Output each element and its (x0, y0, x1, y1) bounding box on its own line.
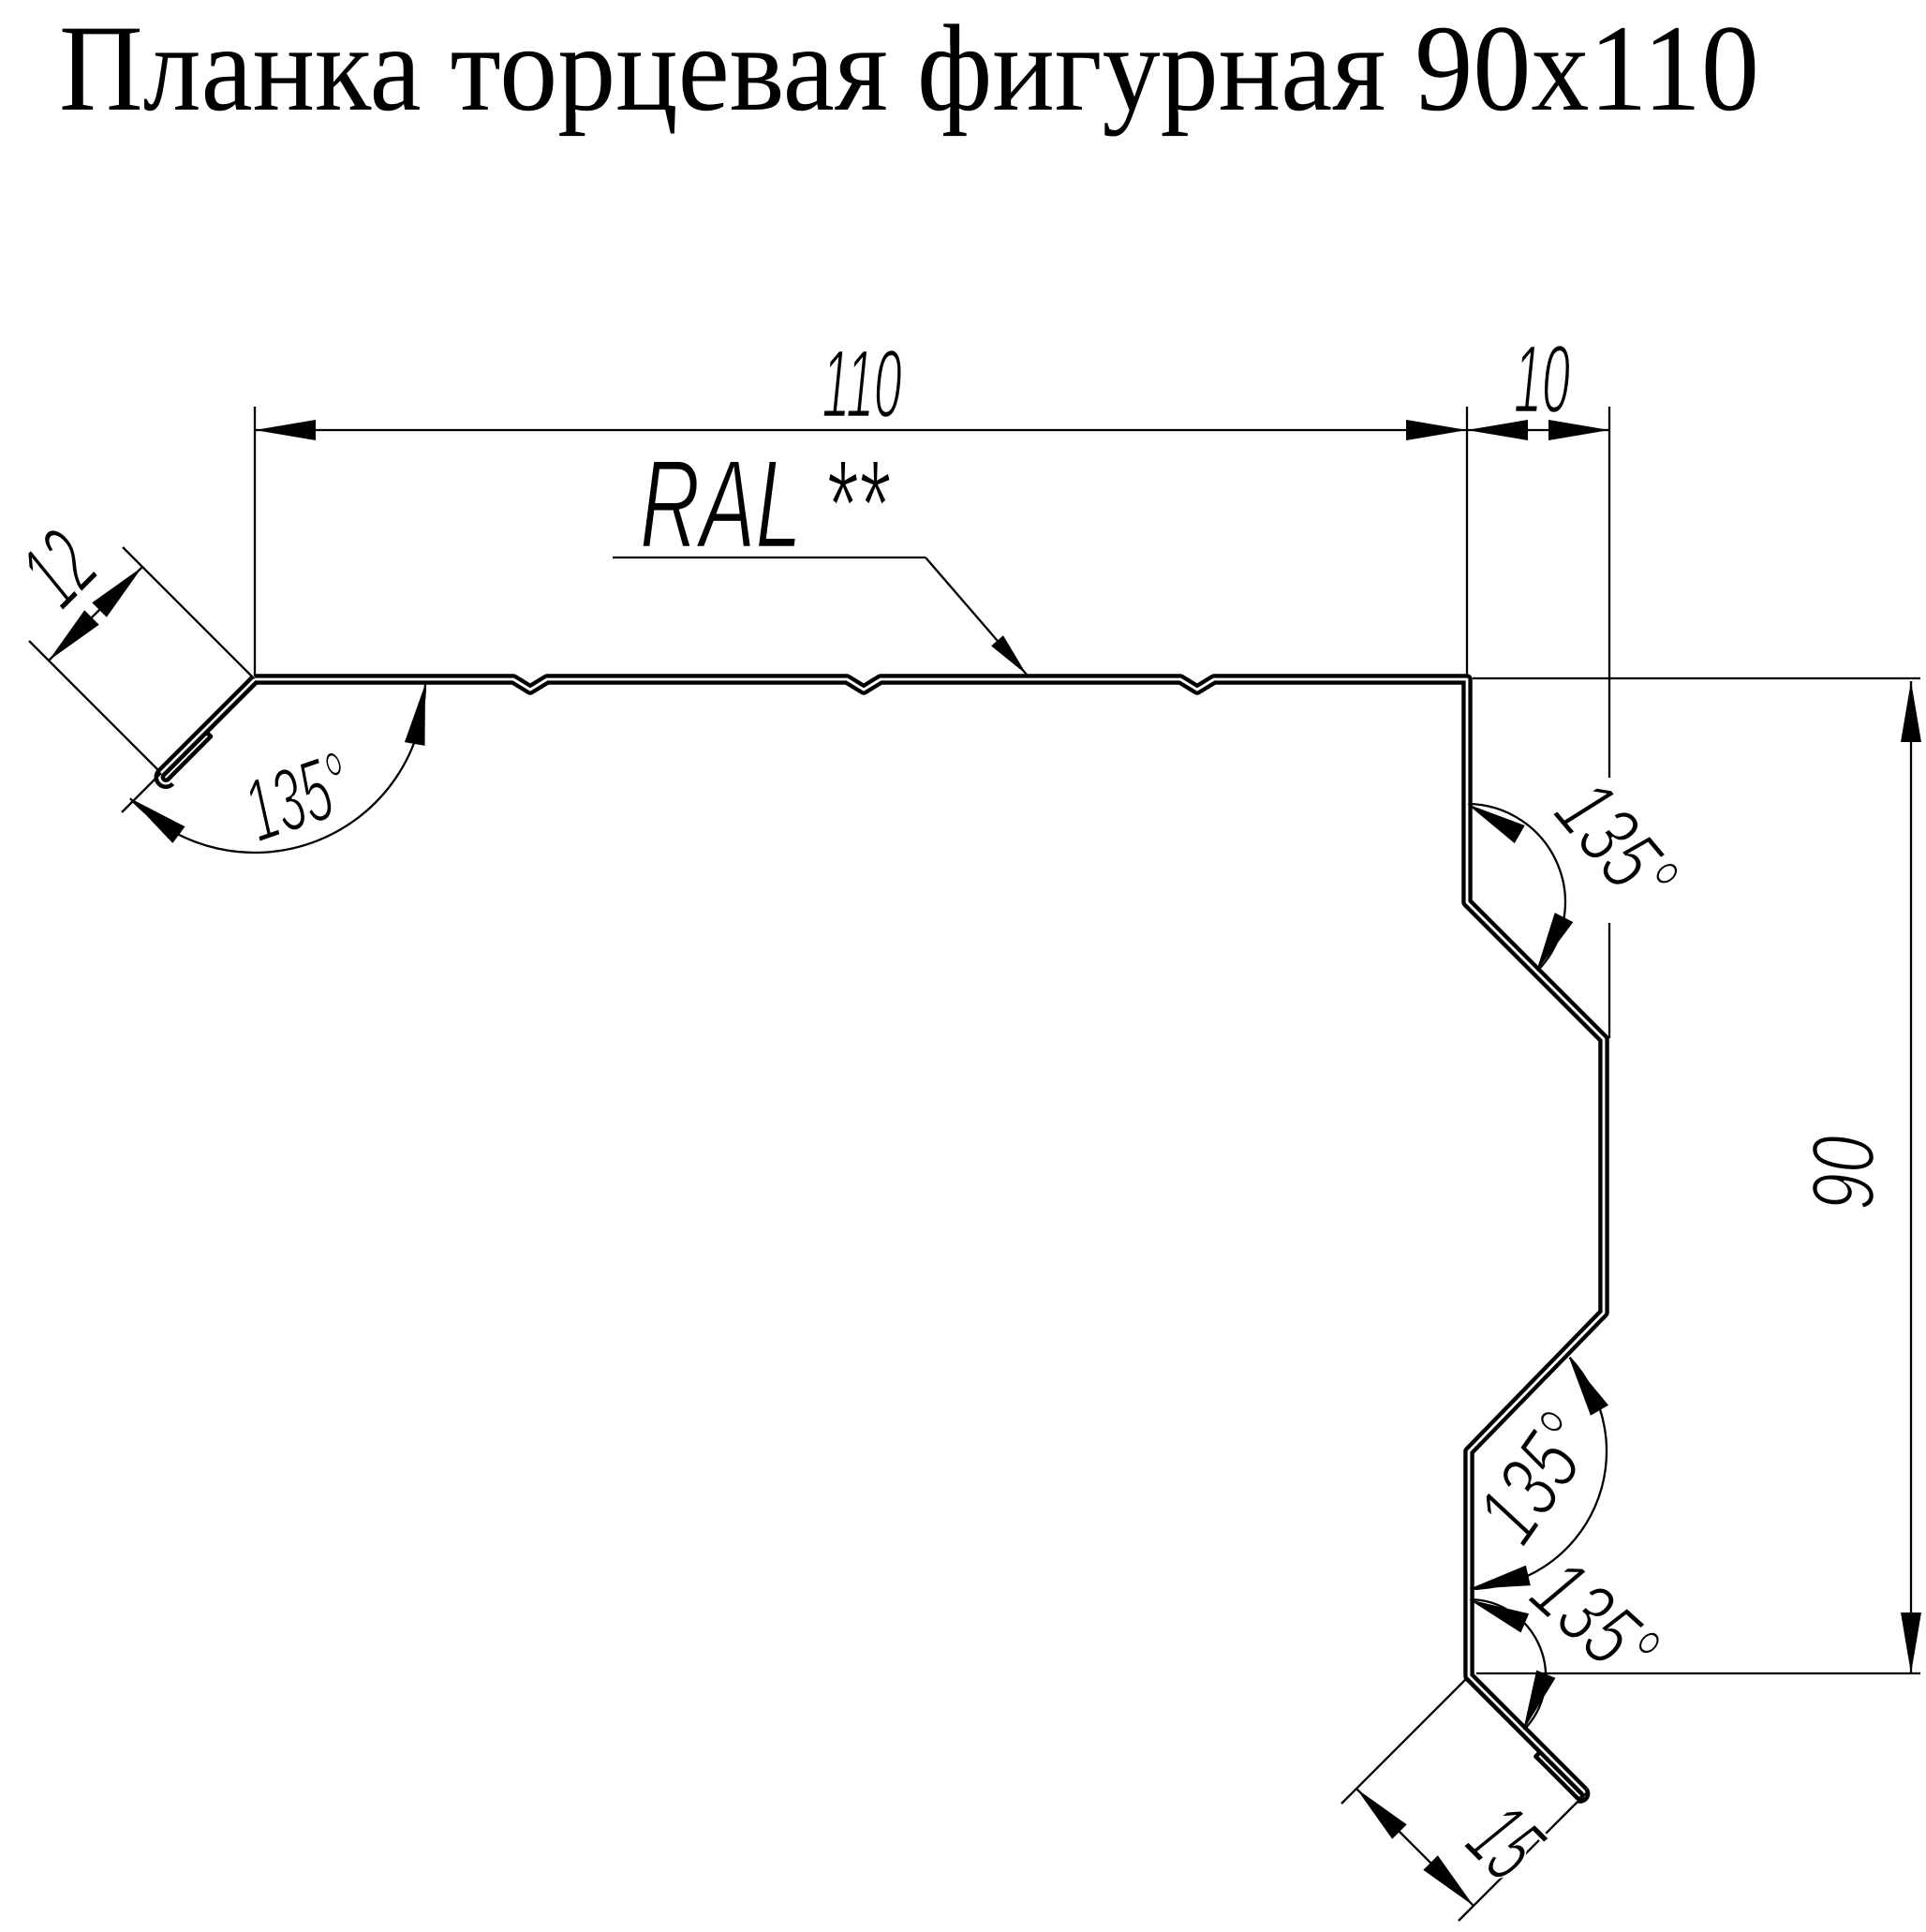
svg-text:135°: 135° (1458, 1396, 1614, 1560)
svg-text:90: 90 (1794, 1136, 1893, 1211)
svg-text:Планка торцевая фигурная 90х11: Планка торцевая фигурная 90х110 (59, 0, 1759, 137)
svg-text:135°: 135° (1536, 762, 1696, 926)
svg-text:15: 15 (1447, 1784, 1563, 1900)
svg-text:110: 110 (822, 330, 902, 438)
svg-text:RAL **: RAL ** (640, 435, 891, 574)
svg-text:135°: 135° (232, 734, 363, 862)
svg-text:10: 10 (1514, 325, 1570, 433)
